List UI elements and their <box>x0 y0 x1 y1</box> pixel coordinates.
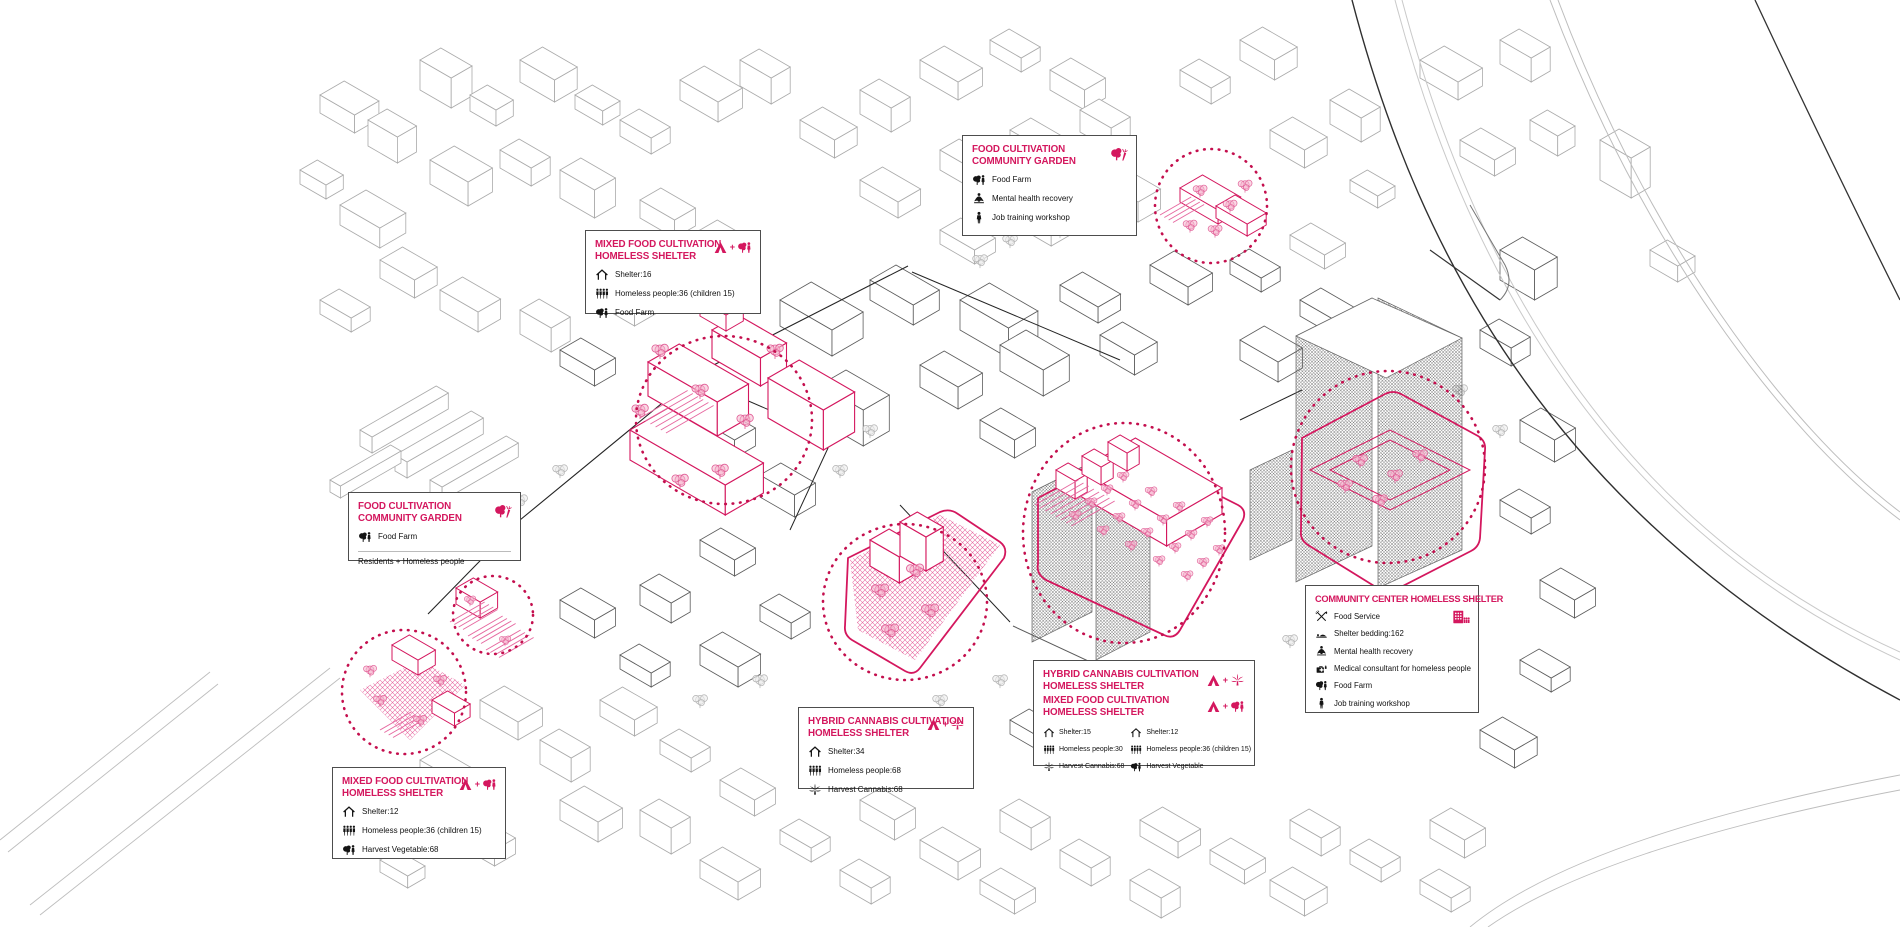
tent-icon <box>1206 673 1221 688</box>
food-farm-icon <box>737 240 752 255</box>
job-training-icon <box>972 211 986 225</box>
legend-row: Shelter:34 <box>808 745 964 759</box>
plus-sign: + <box>475 780 480 789</box>
plus-sign: + <box>1223 702 1228 711</box>
legend-row: Food Service <box>1315 610 1469 623</box>
legend-row: Homeless people:36 (children 15) <box>595 287 751 301</box>
garden-badge <box>494 502 512 520</box>
legend-column-cannabis: Shelter:15 Homeless people:30 Harvest Ca… <box>1043 722 1124 773</box>
callout-hybrid-cannabis-cultivation-homeless-shelter-south: + Hybrid Cannabis Cultivation Homeless S… <box>798 707 974 789</box>
legend-row: Harvest Vegetable:68 <box>342 843 496 857</box>
tent-icon <box>458 777 473 792</box>
shelter-icon <box>1130 727 1142 739</box>
tent-plus-farm-badge: + <box>713 240 752 255</box>
tent-icon <box>713 240 728 255</box>
food-farm-icon <box>1315 679 1328 692</box>
garden-badge <box>1110 145 1128 163</box>
callout-footnote: Residents + Homeless people <box>358 551 511 566</box>
building-people-badge <box>1452 608 1470 626</box>
tent-icon <box>926 717 941 732</box>
legend-columns: Shelter:15 Homeless people:30 Harvest Ca… <box>1043 722 1245 773</box>
legend-row: Food Farm <box>1315 679 1469 692</box>
homeless-people-icon <box>595 287 609 301</box>
callout-title: Food Cultivation Community Garden <box>358 501 511 525</box>
callout-mixed-food-cultivation-homeless-shelter-north: + Mixed Food Cultivation Homeless Shelte… <box>585 230 761 314</box>
focus-area-circle <box>453 576 533 654</box>
harvest-vegetable-icon <box>342 843 356 857</box>
food-farm-icon <box>972 173 986 187</box>
shelter-icon <box>1043 727 1055 739</box>
tree-carrot-icon <box>494 502 512 520</box>
medical-consultant-icon <box>1315 662 1328 675</box>
homeless-people-icon <box>342 824 356 838</box>
harvest-cannabis-icon <box>1043 761 1055 773</box>
plus-sign: + <box>943 720 948 729</box>
legend-row: Job training workshop <box>1315 697 1469 710</box>
homeless-people-icon <box>1130 744 1142 756</box>
food-farm-icon <box>595 306 609 320</box>
cannabis-leaf-icon <box>950 717 965 732</box>
tent-plus-farm-badge: + <box>1206 699 1245 714</box>
legend-row: Mental health recovery <box>972 192 1127 206</box>
shelter-icon <box>342 805 356 819</box>
tent-plus-farm-badge: + <box>458 777 497 792</box>
legend-row: Shelter:12 <box>342 805 496 819</box>
callout-mixed-food-cultivation-homeless-shelter-southwest: + Mixed Food Cultivation Homeless Shelte… <box>332 767 506 859</box>
tent-icon <box>1206 699 1221 714</box>
callout-food-cultivation-community-garden-west: Food Cultivation Community Garden Food F… <box>348 492 521 561</box>
food-service-icon <box>1315 610 1328 623</box>
plus-sign: + <box>1223 676 1228 685</box>
building-people-icon <box>1452 608 1470 626</box>
homeless-people-icon <box>1043 744 1055 756</box>
callout-title-group: Mixed Food Cultivation Homeless Shelter … <box>1043 695 1245 719</box>
food-farm-icon <box>482 777 497 792</box>
plus-sign: + <box>730 243 735 252</box>
legend-row: Shelter:16 <box>595 268 751 282</box>
tent-plus-cannabis-badge: + <box>1206 673 1245 688</box>
legend-row: Food Farm <box>358 530 511 544</box>
legend-column-food: Shelter:12 Homeless people:36 (children … <box>1130 722 1251 773</box>
shelter-bedding-icon <box>1315 627 1328 640</box>
food-farm-icon <box>358 530 372 544</box>
callout-title: Community Center Homeless Shelter <box>1315 594 1469 605</box>
food-farm-icon <box>1230 699 1245 714</box>
job-training-icon <box>1315 697 1328 710</box>
urban-design-diagram-page: { "colors": { "accent": "#d4175e", "focu… <box>0 0 1900 927</box>
tent-plus-cannabis-badge: + <box>926 717 965 732</box>
harvest-vegetable-icon <box>1130 761 1142 773</box>
callout-title-group: Hybrid Cannabis Cultivation Homeless She… <box>1043 669 1245 693</box>
callout-hybrid-cannabis-and-mixed-food-center: Hybrid Cannabis Cultivation Homeless She… <box>1033 660 1255 766</box>
legend-row: Harvest Cannabis:68 <box>808 783 964 797</box>
legend-row: Job training workshop <box>972 211 1127 225</box>
legend-row: Food Farm <box>595 306 751 320</box>
legend-row: Shelter bedding:162 <box>1315 627 1469 640</box>
shelter-icon <box>595 268 609 282</box>
shelter-icon <box>808 745 822 759</box>
legend-row: Homeless people:36 (children 15) <box>342 824 496 838</box>
harvest-cannabis-icon <box>808 783 822 797</box>
legend-row: Mental health recovery <box>1315 645 1469 658</box>
legend-row: Homeless people:68 <box>808 764 964 778</box>
mental-health-icon <box>972 192 986 206</box>
legend-row: Medical consultant for homeless people <box>1315 662 1469 675</box>
callout-food-cultivation-community-garden-north: Food Cultivation Community Garden Food F… <box>962 135 1137 236</box>
cannabis-leaf-icon <box>1230 673 1245 688</box>
mental-health-icon <box>1315 645 1328 658</box>
callout-title: Food Cultivation Community Garden <box>972 144 1127 168</box>
callout-community-center-homeless-shelter: Community Center Homeless Shelter Food S… <box>1305 585 1479 713</box>
homeless-people-icon <box>808 764 822 778</box>
tree-carrot-icon <box>1110 145 1128 163</box>
legend-row: Food Farm <box>972 173 1127 187</box>
